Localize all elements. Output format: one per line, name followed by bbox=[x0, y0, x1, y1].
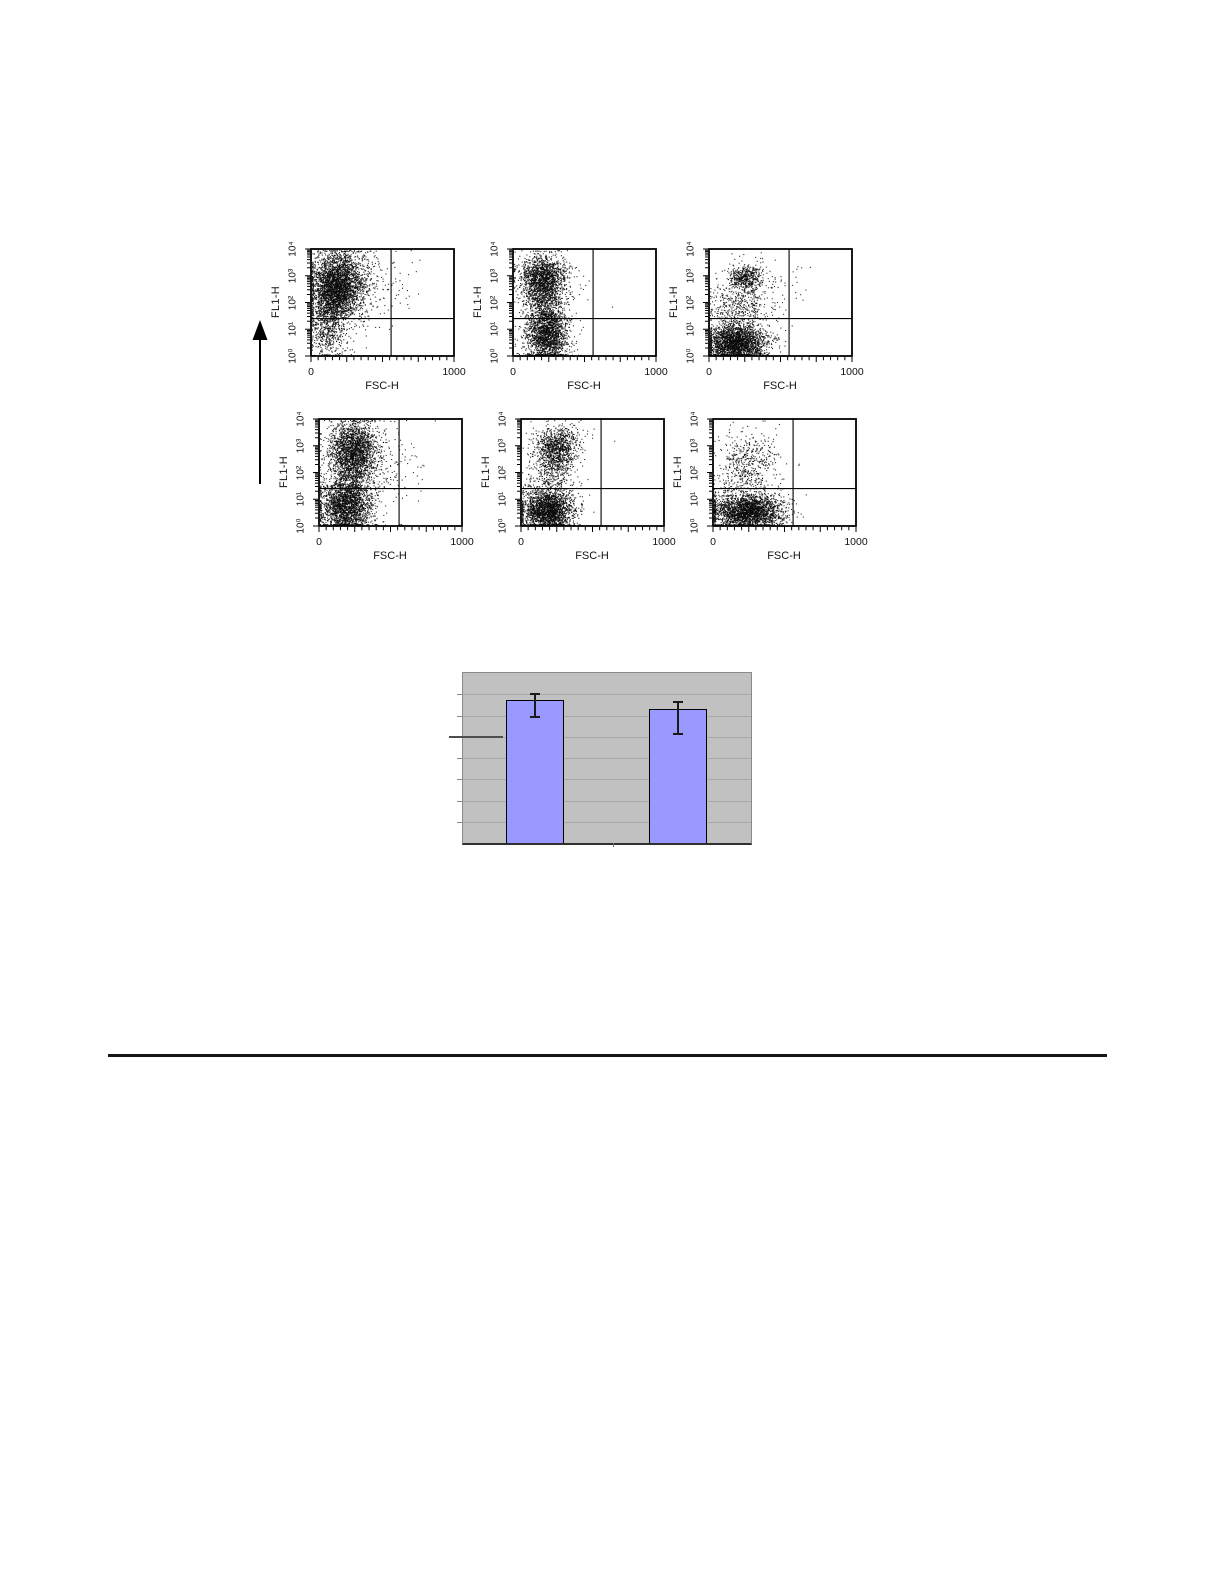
y-axis-tick-label: 10⁰ bbox=[686, 348, 697, 363]
y-axis-tick-label: 10⁴ bbox=[288, 241, 299, 256]
y-axis-tick-label: 10¹ bbox=[690, 492, 701, 506]
y-axis-tick-label: 10² bbox=[690, 465, 701, 479]
x-axis-tick-label-min: 0 bbox=[510, 366, 516, 378]
facs-dot-plot-3: FL1-H 10⁰10¹10²10³10⁴ 0 1000 FSC-H bbox=[666, 240, 866, 400]
x-axis-tick-label-max: 1000 bbox=[644, 366, 667, 378]
facs-canvas bbox=[506, 248, 662, 366]
error-bar-cap bbox=[673, 733, 683, 735]
x-axis-tick-labels: 0 1000 bbox=[304, 366, 460, 380]
x-axis-label: FSC-H bbox=[567, 380, 601, 392]
axis-tick-accent bbox=[449, 736, 503, 738]
y-axis-tick-label: 10² bbox=[686, 295, 697, 309]
bar bbox=[506, 700, 564, 843]
y-axis-tick-label: 10² bbox=[490, 295, 501, 309]
error-bar-cap bbox=[530, 716, 540, 718]
y-axis-tick-label: 10³ bbox=[490, 269, 501, 283]
y-axis-tick-label: 10¹ bbox=[288, 322, 299, 336]
y-axis-tick-label: 10⁴ bbox=[686, 241, 697, 256]
y-axis-tick-label: 10³ bbox=[686, 269, 697, 283]
facs-dot-plot-4: FL1-H 10⁰10¹10²10³10⁴ 0 1000 FSC-H bbox=[276, 410, 476, 570]
y-axis-tick-label: 10⁰ bbox=[288, 348, 299, 363]
axis-tick bbox=[457, 758, 463, 759]
y-axis-tick-labels: 10⁰10¹10²10³10⁴ bbox=[478, 410, 514, 570]
facs-dot-plot-2: FL1-H 10⁰10¹10²10³10⁴ 0 1000 FSC-H bbox=[470, 240, 670, 400]
y-axis-tick-label: 10³ bbox=[498, 439, 509, 453]
facs-canvas bbox=[312, 418, 468, 536]
y-axis-tick-labels: 10⁰10¹10²10³10⁴ bbox=[670, 410, 706, 570]
error-bar bbox=[534, 694, 536, 717]
separator-line bbox=[108, 1054, 1107, 1057]
facs-canvas bbox=[514, 418, 670, 536]
y-axis-tick-label: 10² bbox=[498, 465, 509, 479]
facs-dot-plot-5: FL1-H 10⁰10¹10²10³10⁴ 0 1000 FSC-H bbox=[478, 410, 678, 570]
y-axis-tick-labels: 10⁰10¹10²10³10⁴ bbox=[268, 240, 304, 400]
x-axis-tick-labels: 0 1000 bbox=[706, 536, 862, 550]
y-axis-tick-label: 10⁰ bbox=[490, 348, 501, 363]
facs-canvas bbox=[702, 248, 858, 366]
error-bar bbox=[677, 702, 679, 734]
y-axis-tick-label: 10¹ bbox=[686, 322, 697, 336]
y-axis-tick-label: 10⁴ bbox=[498, 411, 509, 426]
x-axis-label: FSC-H bbox=[365, 380, 399, 392]
y-axis-tick-label: 10⁴ bbox=[296, 411, 307, 426]
axis-tick bbox=[457, 779, 463, 780]
x-axis-tick-label-min: 0 bbox=[706, 366, 712, 378]
axis-tick bbox=[457, 822, 463, 823]
y-axis-tick-label: 10¹ bbox=[498, 492, 509, 506]
x-axis-tick-label-max: 1000 bbox=[442, 366, 465, 378]
x-axis-tick-label-max: 1000 bbox=[840, 366, 863, 378]
y-axis-tick-label: 10¹ bbox=[296, 492, 307, 506]
y-axis-tick-labels: 10⁰10¹10²10³10⁴ bbox=[276, 410, 312, 570]
x-axis-label: FSC-H bbox=[767, 550, 801, 562]
y-axis-tick-label: 10² bbox=[296, 465, 307, 479]
x-axis-tick-labels: 0 1000 bbox=[702, 366, 858, 380]
x-axis-label: FSC-H bbox=[763, 380, 797, 392]
x-axis-tick-label-min: 0 bbox=[308, 366, 314, 378]
y-axis-tick-label: 10⁴ bbox=[690, 411, 701, 426]
y-axis-tick-label: 10³ bbox=[690, 439, 701, 453]
y-axis-tick-label: 10³ bbox=[296, 439, 307, 453]
y-axis-tick-labels: 10⁰10¹10²10³10⁴ bbox=[666, 240, 702, 400]
x-axis-tick-label-min: 0 bbox=[316, 536, 322, 548]
y-axis-tick-label: 10⁰ bbox=[498, 518, 509, 533]
x-axis-label: FSC-H bbox=[575, 550, 609, 562]
error-bar-cap bbox=[673, 701, 683, 703]
x-axis-tick-label-max: 1000 bbox=[844, 536, 867, 548]
facs-canvas bbox=[304, 248, 460, 366]
x-axis-tick bbox=[613, 843, 614, 847]
gridline bbox=[463, 694, 751, 695]
x-axis-tick-labels: 0 1000 bbox=[506, 366, 662, 380]
x-axis-tick-label-max: 1000 bbox=[450, 536, 473, 548]
y-axis-tick-label: 10² bbox=[288, 295, 299, 309]
y-axis-tick-label: 10¹ bbox=[490, 322, 501, 336]
facs-dot-plot-6: FL1-H 10⁰10¹10²10³10⁴ 0 1000 FSC-H bbox=[670, 410, 870, 570]
x-axis-label: FSC-H bbox=[373, 550, 407, 562]
x-axis-tick-label-min: 0 bbox=[710, 536, 716, 548]
x-axis-tick-labels: 0 1000 bbox=[514, 536, 670, 550]
y-axis-tick-label: 10⁰ bbox=[690, 518, 701, 533]
x-axis-tick-label-min: 0 bbox=[518, 536, 524, 548]
axis-tick bbox=[457, 801, 463, 802]
axis-tick bbox=[457, 694, 463, 695]
facs-canvas bbox=[706, 418, 862, 536]
y-axis-tick-label: 10⁴ bbox=[490, 241, 501, 256]
error-bar-cap bbox=[530, 693, 540, 695]
scanned-paper-page: FL1-H 10⁰10¹10²10³10⁴ 0 1000 FSC-H FL1-H… bbox=[0, 0, 1221, 1585]
y-axis-tick-label: 10⁰ bbox=[296, 518, 307, 533]
y-axis-tick-labels: 10⁰10¹10²10³10⁴ bbox=[470, 240, 506, 400]
facs-dot-plot-1: FL1-H 10⁰10¹10²10³10⁴ 0 1000 FSC-H bbox=[268, 240, 468, 400]
x-axis-tick-labels: 0 1000 bbox=[312, 536, 468, 550]
axis-tick bbox=[457, 716, 463, 717]
bar-chart bbox=[462, 672, 752, 845]
y-axis-tick-label: 10³ bbox=[288, 269, 299, 283]
